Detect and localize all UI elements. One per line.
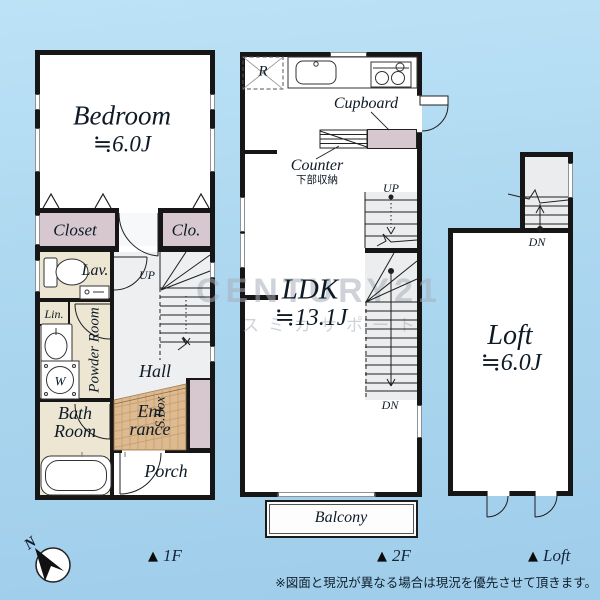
- window: [240, 197, 245, 232]
- floor1-plan: [35, 50, 215, 500]
- window: [330, 52, 367, 57]
- wall: [165, 448, 210, 453]
- door-2f: [420, 96, 448, 131]
- window: [35, 260, 40, 292]
- window: [35, 215, 40, 245]
- watermark-brand: CENTURY21: [196, 272, 442, 311]
- linen-closet: [40, 302, 70, 326]
- loft-door-arc: [487, 496, 508, 517]
- floor-plan-canvas: CENTURY21 スミカサポート: [0, 0, 600, 600]
- window: [278, 492, 375, 497]
- marker-2f: ▲ 2F: [377, 546, 411, 566]
- closet-room: [40, 213, 115, 246]
- closet-doorway: [119, 213, 158, 246]
- triangle-icon: ▲: [528, 549, 538, 564]
- window: [568, 163, 573, 198]
- compass-north-label: N: [22, 535, 40, 554]
- wall: [158, 246, 210, 252]
- marker-1f-text: 1F: [163, 546, 182, 566]
- cupboard: [367, 129, 417, 149]
- door-gap: [417, 95, 422, 133]
- window: [35, 128, 40, 172]
- window: [417, 405, 422, 438]
- clo-room: [163, 213, 210, 246]
- door-gap: [535, 491, 557, 496]
- window: [210, 346, 215, 362]
- wall: [40, 208, 115, 213]
- wall: [115, 208, 119, 246]
- window: [210, 94, 215, 110]
- watermark-sub: スミカサポート: [242, 311, 424, 336]
- triangle-icon: ▲: [148, 549, 158, 564]
- wall: [240, 150, 277, 154]
- window: [210, 128, 215, 172]
- balcony-inner-rail: [269, 504, 414, 534]
- wall: [158, 208, 163, 246]
- wall: [114, 448, 122, 453]
- loft-door-arc: [535, 496, 557, 517]
- wall: [40, 246, 119, 252]
- window: [240, 233, 245, 268]
- loft-stair-box: [520, 152, 573, 233]
- wall: [40, 298, 114, 302]
- wall: [158, 208, 210, 213]
- triangle-icon: ▲: [377, 549, 387, 564]
- loft-plan: [448, 228, 573, 496]
- marker-1f: ▲ 1F: [148, 546, 182, 566]
- disclaimer-text: ※図面と現況が異なる場合は現況を優先させて頂きます。: [275, 577, 597, 590]
- shoe-box: [186, 378, 210, 450]
- window: [35, 94, 40, 110]
- door-gap: [487, 491, 510, 496]
- balcony: [265, 500, 418, 538]
- lavatory-room: [40, 252, 110, 298]
- wall: [110, 252, 114, 495]
- wall: [40, 398, 114, 402]
- marker-2f-text: 2F: [392, 546, 411, 566]
- compass-icon: [35, 548, 70, 582]
- porch-area: [114, 453, 210, 495]
- bath-room: [40, 402, 110, 495]
- marker-loft-text: Loft: [543, 546, 570, 566]
- wall: [365, 248, 417, 253]
- marker-loft: ▲ Loft: [528, 546, 570, 566]
